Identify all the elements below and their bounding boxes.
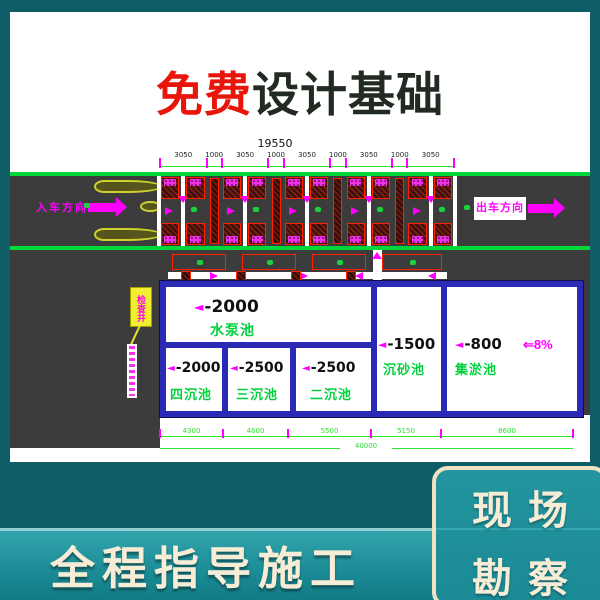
flow-arrow-icon (300, 272, 308, 280)
lane-arrow-icon (289, 207, 297, 215)
pool-two: ◄-2500 二沉池 (296, 348, 371, 411)
entry-arrow-icon (88, 203, 116, 212)
pool-name: 集淤池 (455, 359, 497, 378)
grate-box (186, 177, 204, 199)
depth-marker-icon: ◄ (194, 300, 203, 314)
grate-cap (350, 179, 361, 186)
dim-label: 5500 (316, 427, 344, 435)
grate-box (372, 177, 390, 199)
grate-box (310, 177, 328, 199)
site-survey-badge: 现场 勘察 (432, 466, 600, 600)
dim-label: 1000 (324, 151, 352, 159)
grate-cap (288, 179, 299, 186)
banner-title-rest: 设计基础 (252, 68, 444, 121)
exit-arrow-icon (528, 204, 554, 213)
dim-tick (287, 429, 289, 438)
wash-bay (160, 176, 207, 246)
drain-strip-marks (129, 346, 135, 396)
pool-pump: ◄-2000 水泵池 (166, 287, 371, 342)
drain-column (272, 178, 281, 244)
grate-cap (252, 179, 263, 186)
dim-tick (222, 429, 224, 438)
lane-arrow-icon (413, 207, 421, 215)
marker-dot (253, 207, 259, 212)
grate-cap (190, 179, 201, 186)
slope-label: ⇐8% (523, 337, 553, 353)
footer-banner-text: 全程指导施工 (50, 532, 362, 597)
drain-column (333, 178, 342, 244)
dim-tick (453, 158, 455, 168)
drain-pit (382, 254, 442, 270)
grate-cap (164, 236, 175, 243)
bay-divider (453, 176, 457, 246)
pool-name: 沉砂池 (383, 359, 425, 378)
banner-title: 免费设计基础 (0, 56, 600, 125)
exit-direction-label: 出车方向 (474, 197, 526, 220)
grate-cap (375, 236, 386, 243)
bay-divider (181, 176, 185, 246)
wash-bay (407, 176, 454, 246)
grate-box (248, 223, 266, 245)
badge-line-2: 勘察 (436, 546, 600, 600)
drain-column (210, 178, 219, 244)
dim-label: 3050 (293, 151, 321, 159)
lane-arrow-icon (165, 207, 173, 215)
dim-label: 3050 (417, 151, 445, 159)
drain-column (291, 271, 301, 281)
traffic-island (94, 228, 162, 241)
bay-gap (330, 176, 345, 246)
grate-box (347, 177, 365, 199)
drain-column (346, 271, 356, 281)
drain-pit (312, 254, 366, 270)
dim-tick (391, 158, 393, 168)
wash-bay (222, 176, 269, 246)
pool-silt: ◄-800 集淤池 ⇐8% (447, 287, 577, 411)
top-dim-line (160, 166, 454, 167)
bay-divider (243, 176, 247, 246)
marker-dot (377, 207, 383, 212)
dim-tick (572, 429, 574, 438)
grate-box (347, 223, 365, 245)
grate-box (161, 223, 179, 245)
dim-label: 3050 (231, 151, 259, 159)
grate-cap (226, 236, 237, 243)
bay-gap (392, 176, 407, 246)
dim-tick (221, 158, 223, 168)
pool-block: ◄-2000 水泵池 ◄-1500 沉砂池 ◄-800 集淤池 ⇐8% ◄-20… (160, 281, 583, 417)
pool-name: 水泵池 (210, 320, 255, 340)
flow-arrow-icon (355, 272, 363, 280)
marker-dot (464, 205, 470, 210)
marker-dot (315, 207, 321, 212)
drain-strip (127, 344, 137, 398)
depth-marker-icon: ◄ (302, 363, 310, 374)
traffic-island (94, 180, 162, 193)
badge-line-1: 现场 (436, 478, 600, 536)
pool-sand: ◄-1500 沉砂池 (377, 287, 441, 411)
pool-name: 三沉池 (236, 384, 278, 403)
dim-label: 4300 (178, 427, 206, 435)
bay-divider (157, 176, 161, 246)
marker-dot (191, 207, 197, 212)
dim-label: 4600 (242, 427, 270, 435)
grate-box (186, 223, 204, 245)
bottom-overall-dimension: 40000 (340, 442, 392, 450)
dim-label: 1000 (386, 151, 414, 159)
pool-depth: ◄-800 (455, 335, 502, 353)
depth-marker-icon: ◄ (230, 363, 238, 374)
grate-cap (190, 236, 201, 243)
wash-bay (346, 176, 393, 246)
banner-title-highlight: 免费 (156, 68, 252, 121)
callout-box: 检查井 (130, 287, 152, 327)
flow-arrow-icon (210, 272, 218, 280)
pool-depth: ◄-2000 (167, 360, 221, 376)
grate-box (285, 223, 303, 245)
pool-four: ◄-2000 四沉池 (166, 348, 222, 411)
wash-bay (284, 176, 331, 246)
bay-divider (367, 176, 371, 246)
marker-dot (267, 260, 273, 265)
entry-direction-label: 入车方向 (36, 199, 88, 215)
dim-tick (159, 429, 161, 438)
grate-box (285, 177, 303, 199)
flow-arrow-icon (428, 272, 436, 280)
pool-depth: ◄-2000 (194, 297, 259, 317)
grate-box (434, 223, 452, 245)
dim-tick (440, 429, 442, 438)
pool-name: 四沉池 (170, 384, 212, 403)
dim-label: 3050 (355, 151, 383, 159)
grate-box (223, 177, 241, 199)
grate-cap (437, 236, 448, 243)
drain-column (181, 271, 191, 281)
grate-cap (350, 236, 361, 243)
grate-box (310, 223, 328, 245)
right-ground (583, 281, 590, 415)
grate-cap (437, 179, 448, 186)
marker-dot (84, 203, 90, 208)
flow-arrow-icon (372, 252, 382, 259)
pool-depth: ◄-2500 (230, 360, 284, 376)
dim-tick (406, 158, 408, 168)
grate-cap (313, 236, 324, 243)
dim-tick (329, 158, 331, 168)
depth-marker-icon: ◄ (455, 338, 463, 351)
bay-divider (429, 176, 433, 246)
depth-marker-icon: ◄ (378, 338, 386, 351)
promo-image: 免费设计基础 19550 入车方向 出车方向 ◄-2000 水泵池 ◄-1500… (0, 0, 600, 600)
dim-label: 1000 (200, 151, 228, 159)
depth-marker-icon: ◄ (167, 363, 175, 374)
dim-label: 8600 (493, 427, 521, 435)
grate-box (161, 177, 179, 199)
dim-tick (267, 158, 269, 168)
marker-dot (337, 260, 343, 265)
grate-cap (164, 179, 175, 186)
grate-box (408, 223, 426, 245)
grate-cap (226, 179, 237, 186)
lane-arrow-icon (351, 207, 359, 215)
drain-column (395, 178, 404, 244)
grate-box (248, 177, 266, 199)
grate-cap (288, 236, 299, 243)
marker-dot (197, 260, 203, 265)
drain-column (236, 271, 246, 281)
top-overall-dimension: 19550 (225, 137, 325, 150)
grate-box (372, 223, 390, 245)
marker-dot (410, 260, 416, 265)
marker-dot (439, 207, 445, 212)
dim-tick (345, 158, 347, 168)
drain-pit (242, 254, 296, 270)
drain-pit (172, 254, 226, 270)
pool-three: ◄-2500 三沉池 (228, 348, 290, 411)
bay-gap (207, 176, 222, 246)
grate-box (223, 223, 241, 245)
grate-box (434, 177, 452, 199)
dim-tick (370, 429, 372, 438)
grate-cap (412, 179, 423, 186)
grate-box (408, 177, 426, 199)
grate-cap (313, 179, 324, 186)
dim-label: 5150 (392, 427, 420, 435)
dim-tick (159, 158, 161, 168)
pool-name: 二沉池 (310, 384, 352, 403)
dim-tick (283, 158, 285, 168)
grate-cap (375, 179, 386, 186)
bay-gap (268, 176, 283, 246)
dim-label: 3050 (169, 151, 197, 159)
bay-divider (305, 176, 309, 246)
grate-cap (252, 236, 263, 243)
lane-arrow-icon (227, 207, 235, 215)
dim-label: 1000 (262, 151, 290, 159)
pool-depth: ◄-1500 (378, 335, 435, 353)
grate-cap (412, 236, 423, 243)
pool-depth: ◄-2500 (302, 360, 356, 376)
dim-tick (206, 158, 208, 168)
